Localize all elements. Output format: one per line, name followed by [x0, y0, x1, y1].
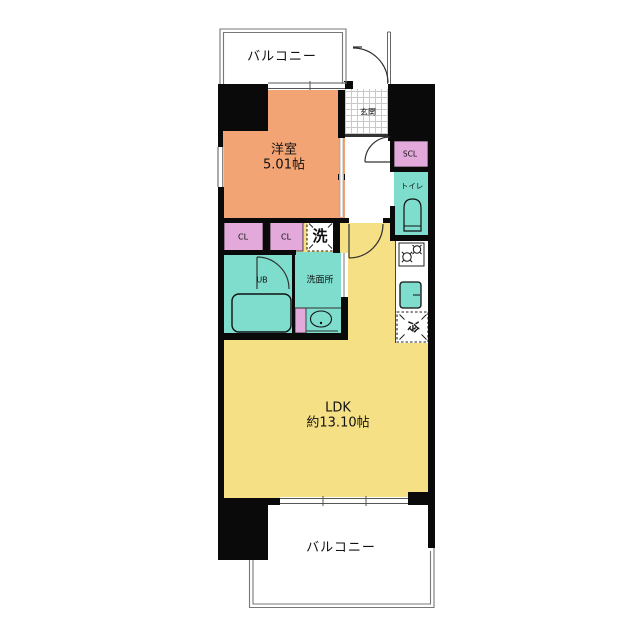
closet-1-label: CL — [238, 232, 248, 241]
wall-segment — [218, 218, 349, 223]
wall-segment — [408, 492, 435, 505]
wall-segment — [390, 167, 428, 172]
entrance-step-line — [345, 134, 388, 137]
wall-segment — [388, 84, 435, 141]
wall-segment — [333, 218, 340, 253]
western-room-size: 5.01帖 — [263, 158, 305, 173]
burner-icon — [413, 246, 420, 253]
ldk-size: 約13.10帖 — [306, 416, 369, 431]
wall-segment — [218, 500, 268, 560]
wall-segment — [218, 250, 296, 255]
wall-segment — [338, 89, 345, 138]
washbasin-drain — [320, 322, 322, 324]
balcony-top-label: バルコニー — [247, 49, 317, 64]
closet-2-label: CL — [281, 232, 291, 241]
bathtub — [232, 294, 291, 332]
burner-icon — [403, 253, 411, 261]
wall-segment — [428, 141, 435, 548]
western-room-name: 洋室 — [263, 143, 305, 158]
wall-segment — [344, 81, 353, 89]
wall-segment — [218, 84, 268, 131]
vanity-side-cabinet — [295, 308, 306, 333]
laundry-label: 洗 — [312, 228, 327, 246]
wall-segment — [390, 206, 395, 236]
western-room-label: 洋室 5.01帖 — [263, 143, 305, 174]
ldk-label: LDK 約13.10帖 — [306, 401, 369, 432]
entrance-door-arc — [353, 47, 388, 83]
ldk-name: LDK — [306, 401, 369, 416]
wall-segment — [292, 252, 295, 333]
balcony-bottom-label: バルコニー — [306, 540, 376, 555]
floor-plan: バルコニー 洋室 5.01帖 玄関 SCL トイレ CL CL 洗 UB 洗面所… — [0, 0, 640, 640]
wall-segment — [218, 187, 224, 505]
wall-segment — [263, 222, 270, 251]
washroom-label: 洗面所 — [306, 276, 333, 287]
hallway-floor — [345, 136, 390, 223]
balcony-bottom-outline — [250, 548, 435, 608]
unit-bath-label: UB — [256, 275, 267, 284]
wall-segment — [390, 141, 394, 167]
shoe-closet-label: SCL — [403, 151, 417, 160]
refrigerator-label: 冷 — [406, 321, 420, 333]
toilet-label: トイレ — [401, 183, 424, 192]
wall-segment — [218, 498, 280, 505]
entrance-label: 玄関 — [360, 107, 376, 116]
toilet-door-gap — [390, 172, 394, 206]
wall-segment — [218, 333, 348, 340]
wall-segment — [218, 131, 223, 147]
